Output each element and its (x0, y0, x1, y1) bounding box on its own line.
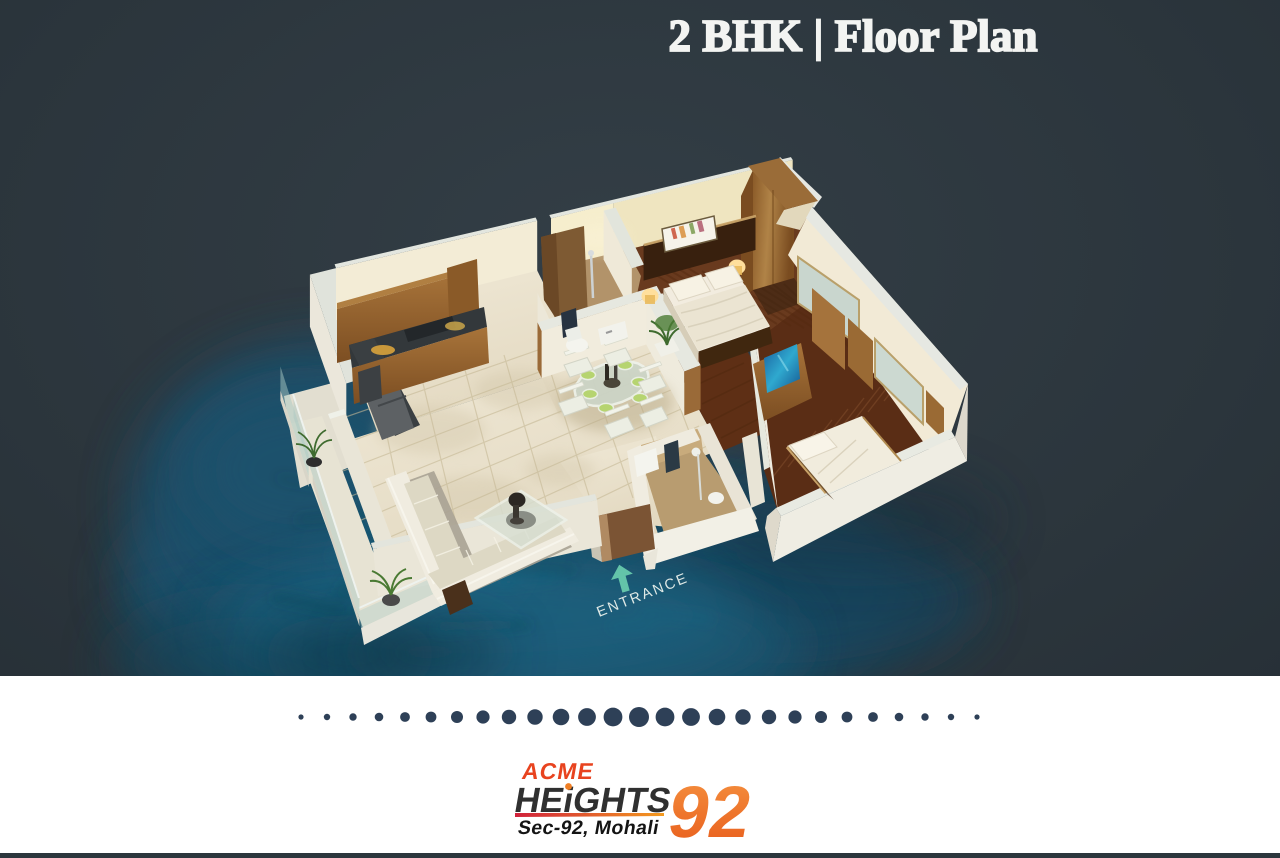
svg-text:92: 92 (662, 771, 758, 853)
svg-text:Sec-92, Mohali: Sec-92, Mohali (516, 817, 661, 839)
svg-text:ACME: ACME (520, 758, 596, 784)
svg-text:2 BHK | Floor Plan: 2 BHK | Floor Plan (668, 11, 1037, 61)
